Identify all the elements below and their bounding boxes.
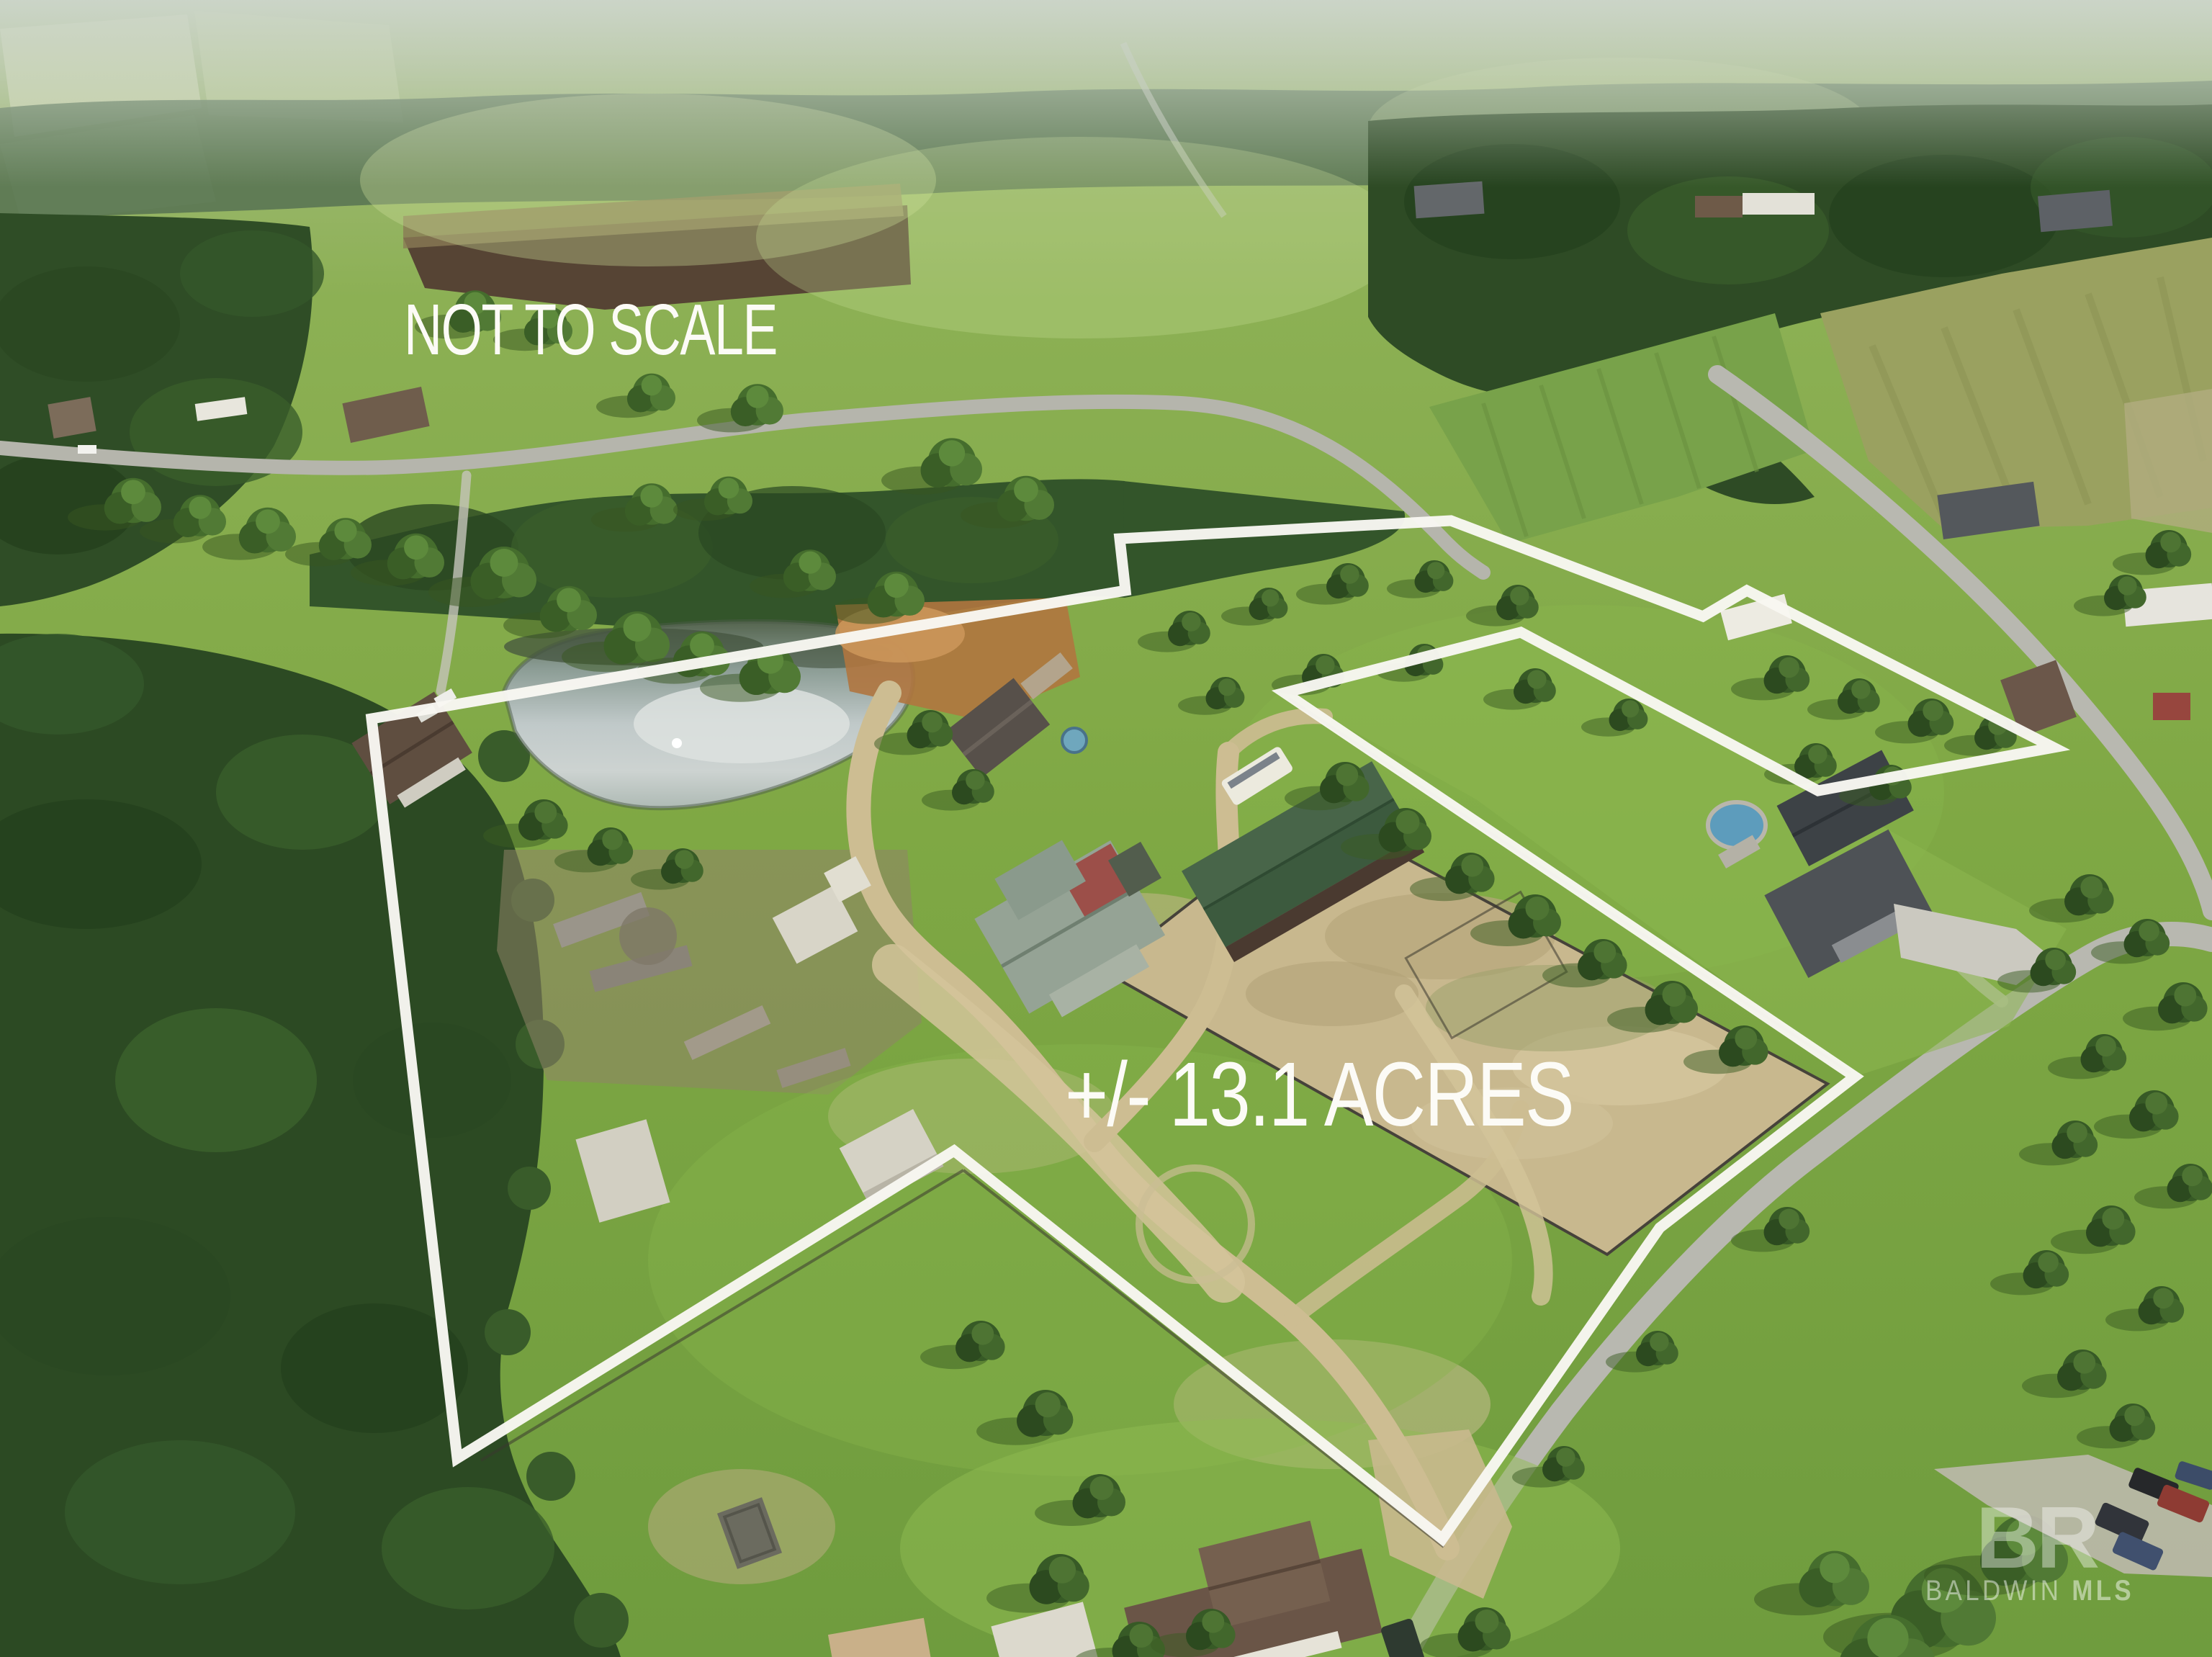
acreage-label: +/- 13.1 ACRES — [1065, 1043, 1573, 1145]
car-on-road — [78, 445, 96, 454]
aerial-photo: NOT TO SCALE +/- 13.1 ACRES BR BALDWIN M… — [0, 0, 2212, 1657]
distant-house — [1695, 196, 1743, 217]
watermark-logo: BR — [1976, 1488, 2098, 1586]
distant-trailer — [1743, 193, 1815, 215]
neighbor-house-left — [48, 397, 96, 439]
pond-fountain — [672, 738, 682, 748]
scale-note-label: NOT TO SCALE — [404, 289, 777, 370]
small-round-pool — [1062, 728, 1087, 753]
red-roof-shed — [2153, 693, 2190, 720]
watermark-name: BALDWIN MLS — [1925, 1575, 2134, 1607]
distant-house — [2038, 190, 2113, 233]
aerial-photo-stage: NOT TO SCALE +/- 13.1 ACRES BR BALDWIN M… — [0, 0, 2212, 1657]
atmospheric-haze — [0, 0, 2212, 187]
